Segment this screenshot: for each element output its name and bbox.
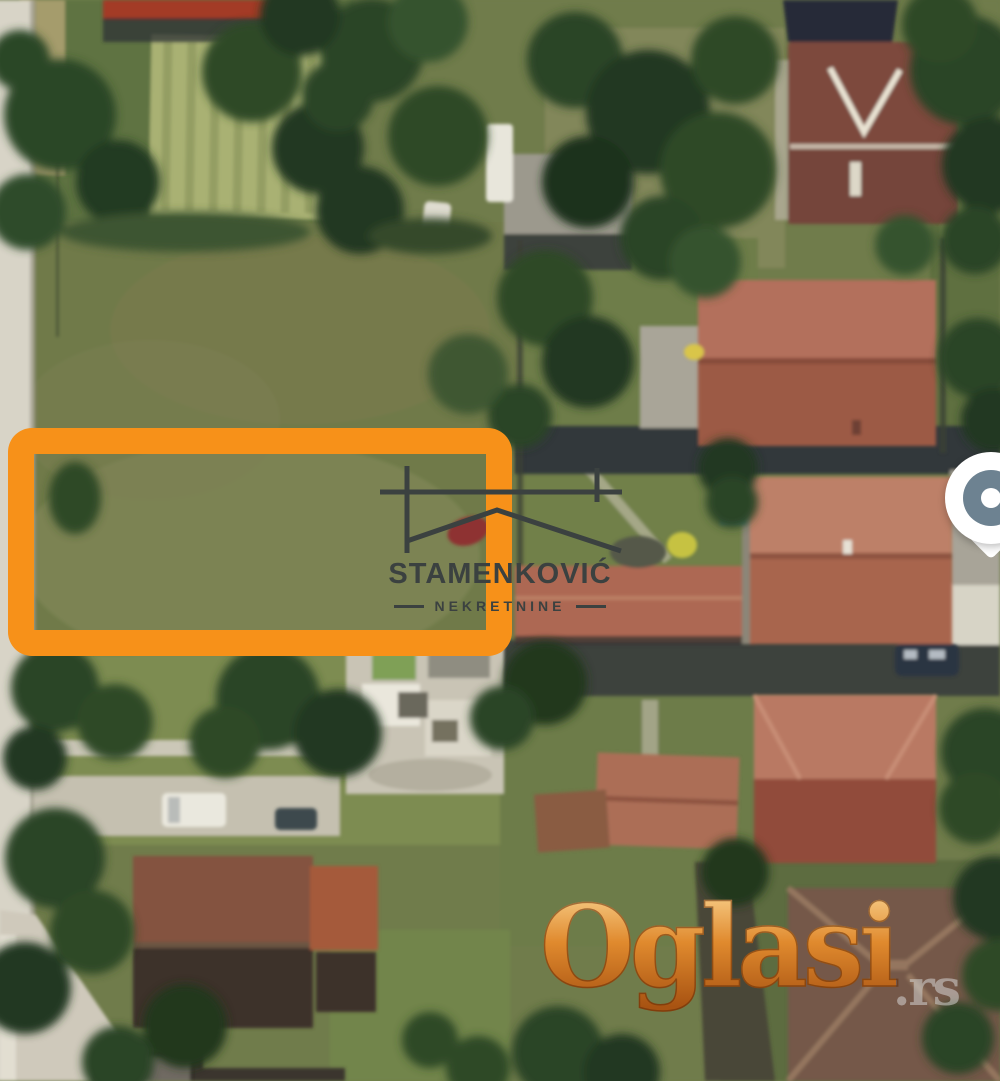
yellow-object xyxy=(684,344,704,360)
pin-center-dot xyxy=(981,488,1000,508)
roof-bottom-strip-2 xyxy=(195,1068,345,1081)
house-outline-icon xyxy=(368,452,632,558)
tree xyxy=(388,86,488,186)
tree xyxy=(542,136,634,228)
tree xyxy=(691,16,779,104)
agency-subtitle-row: NEKRETNINE xyxy=(368,598,632,614)
tree xyxy=(428,334,508,414)
tree xyxy=(402,1012,458,1068)
white-van xyxy=(162,793,226,827)
oglasi-watermark: Oglasi .rs xyxy=(540,884,1000,1074)
navy-car xyxy=(895,644,959,676)
house-mid-right-2 xyxy=(742,477,952,644)
white-truck xyxy=(486,124,513,202)
watermark-site-tld: .rs xyxy=(893,958,959,1017)
listing-photo: STAMENKOVIĆ NEKRETNINE Oglasi .rs xyxy=(0,0,1000,1081)
tree xyxy=(143,984,227,1068)
roof-navy xyxy=(783,0,898,44)
roof-mid-bottom-1 xyxy=(594,753,739,850)
tree xyxy=(3,726,67,790)
hedge xyxy=(368,218,492,254)
tree xyxy=(189,706,261,778)
roof-mid-bottom-2 xyxy=(534,790,610,853)
tree xyxy=(706,476,758,528)
tree xyxy=(669,226,741,298)
watermark-site-name: Oglasi xyxy=(540,884,896,1013)
dash-right xyxy=(576,605,606,608)
dash-left xyxy=(394,605,424,608)
tree xyxy=(294,689,382,777)
tree xyxy=(470,686,534,750)
tree xyxy=(50,890,134,974)
agency-name: STAMENKOVIĆ xyxy=(368,558,632,591)
agency-logo: STAMENKOVIĆ NEKRETNINE xyxy=(368,452,632,622)
tree xyxy=(302,60,374,132)
tree xyxy=(76,140,160,224)
house-bottom-right-1 xyxy=(754,695,936,863)
agency-subtitle: NEKRETNINE xyxy=(434,598,565,614)
tree xyxy=(542,316,634,408)
hedge xyxy=(60,212,310,252)
tree xyxy=(77,684,153,760)
yellow-tarp xyxy=(667,532,697,558)
tree xyxy=(875,215,935,275)
house-mid-right-1 xyxy=(698,280,936,446)
location-pin-icon xyxy=(944,450,1000,570)
dark-car xyxy=(275,808,317,830)
